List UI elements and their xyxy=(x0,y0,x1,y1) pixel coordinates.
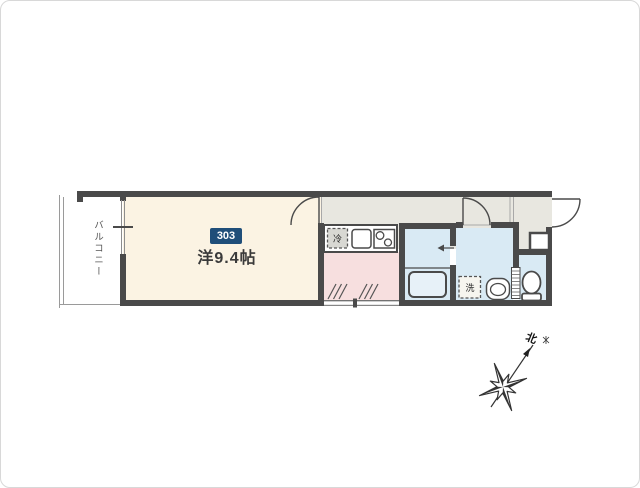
washing-machine-label: 洗 xyxy=(459,277,481,298)
washbasin-icon xyxy=(487,279,510,300)
shoe-cabinet-icon xyxy=(530,233,549,250)
toilet-sliding-door-icon xyxy=(512,268,521,299)
balcony-label: バルコニー xyxy=(90,220,104,284)
unit-number-badge: 303 xyxy=(210,228,242,244)
compass-rose-icon xyxy=(480,336,550,411)
entrance-door-icon xyxy=(552,199,580,227)
kitchen-floor xyxy=(321,252,399,300)
main-room-label: 洋9.4帖 xyxy=(181,244,273,268)
bathtub-icon xyxy=(409,272,446,297)
refrigerator-label: 冷 xyxy=(327,228,348,248)
floorplan-image: 303 洋9.4帖 バルコニー 冷 洗 北 xyxy=(0,0,640,488)
stove-icon xyxy=(374,230,395,249)
toilet-icon xyxy=(522,272,541,301)
compass-sparkle-icon xyxy=(543,336,549,344)
sink-icon xyxy=(352,230,371,249)
